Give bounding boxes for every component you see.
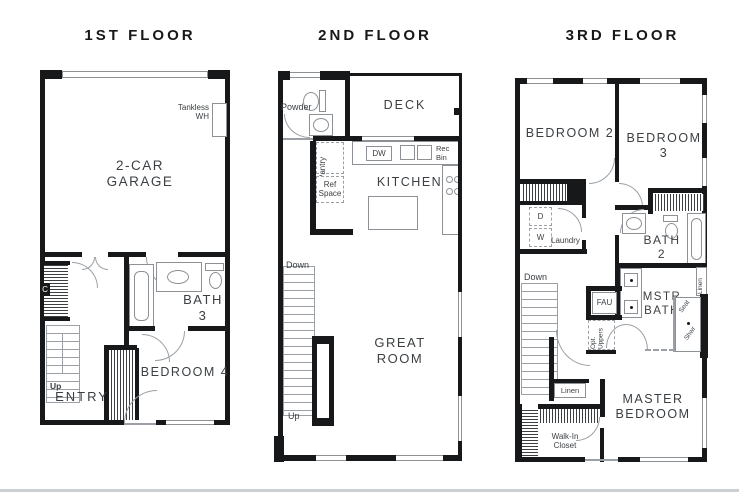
bedroom3-label: BEDROOM 3 <box>620 131 708 161</box>
closet-c-label: C <box>40 283 50 296</box>
wall <box>702 78 707 95</box>
wall <box>454 108 462 115</box>
floor3-title: 3RD FLOOR <box>545 27 700 44</box>
dw-label: DW <box>366 149 392 158</box>
bath2-label: BATH 2 <box>638 233 686 262</box>
wall <box>648 193 653 214</box>
fau-label: FAU <box>592 298 617 307</box>
wall <box>586 350 616 354</box>
window <box>166 420 214 425</box>
stair-well <box>317 344 329 418</box>
wall <box>700 294 708 358</box>
wall <box>188 326 225 331</box>
dryer-label: D <box>529 212 552 221</box>
wall <box>44 317 70 321</box>
wall <box>104 345 109 425</box>
wall <box>346 455 396 461</box>
washer-label: W <box>529 233 552 242</box>
wall <box>350 73 460 76</box>
wall <box>600 428 604 462</box>
wall <box>648 188 707 193</box>
door-threshold <box>585 459 618 461</box>
garage-label: 2-CAR GARAGE <box>70 158 210 190</box>
wall <box>278 71 290 80</box>
toilet-fixture <box>209 272 222 289</box>
powder-label: Powder <box>281 102 312 112</box>
window <box>702 95 707 123</box>
floor2-title: 2ND FLOOR <box>295 27 455 44</box>
toilet-tank <box>663 215 678 222</box>
wall <box>586 286 622 291</box>
floor1-title: 1ST FLOOR <box>55 27 225 44</box>
stairs-arrow <box>62 334 63 374</box>
door-threshold <box>124 423 156 425</box>
wall <box>582 240 586 254</box>
window <box>702 398 707 448</box>
closet-shelving <box>522 409 538 459</box>
bedroom4-label: BEDROOM 4 <box>140 365 230 380</box>
tankless-label: Tankless WH <box>158 103 209 121</box>
window <box>396 455 443 461</box>
linen-lower-label: Linen <box>554 387 586 396</box>
wall <box>688 457 707 462</box>
wall <box>208 70 230 79</box>
toilet-tank <box>205 263 224 271</box>
wall <box>278 455 316 461</box>
window <box>640 457 688 462</box>
master-bedroom-label: MASTER BEDROOM <box>602 392 704 422</box>
kitchen-island <box>368 196 418 230</box>
wall <box>129 326 155 331</box>
door-arc <box>95 257 108 270</box>
sink-fixture <box>626 217 642 230</box>
bathtub-inner <box>134 271 149 321</box>
ref-space-label: Ref Space <box>314 180 346 198</box>
down-label: Down <box>286 260 309 270</box>
sink-fixture <box>167 270 189 284</box>
deck-label: DECK <box>370 98 440 113</box>
wall <box>214 420 230 425</box>
window <box>702 158 707 186</box>
bathtub-inner <box>691 218 702 260</box>
down-label: Down <box>524 272 547 282</box>
wall <box>615 205 652 210</box>
window <box>316 455 346 461</box>
window <box>583 78 607 84</box>
sink-basin <box>417 145 432 160</box>
wall <box>40 70 62 79</box>
closet-shelving <box>523 184 567 201</box>
door-arc <box>556 330 590 366</box>
window <box>458 396 462 441</box>
door-arc <box>626 324 648 350</box>
window <box>527 78 553 84</box>
door-arc <box>558 208 582 232</box>
door-arc <box>72 262 98 288</box>
entry-label: ENTRY <box>42 389 122 405</box>
window <box>290 72 320 78</box>
door-arc <box>589 158 615 184</box>
linen-upper-label: Linen <box>697 269 704 294</box>
window <box>458 292 462 337</box>
wall <box>40 420 124 425</box>
wall <box>178 252 225 257</box>
closet-shelving <box>652 194 704 211</box>
bedroom2-label: BEDROOM 2 <box>520 126 620 141</box>
door-arc <box>284 114 310 138</box>
faucet-dot <box>630 279 633 282</box>
faucet-dot <box>630 306 633 309</box>
door-arc <box>576 417 600 441</box>
toilet-tank <box>319 90 326 112</box>
wall <box>517 249 587 254</box>
wall <box>553 78 583 84</box>
wall <box>615 82 619 182</box>
wall <box>345 73 350 141</box>
sink-basin <box>400 145 415 160</box>
kitchen-label: KITCHEN <box>362 175 457 190</box>
wall <box>702 358 707 398</box>
stairs-floor2 <box>283 266 315 416</box>
door-arc <box>619 183 643 207</box>
tankless-water-heater <box>212 103 227 137</box>
page-divider <box>0 489 739 492</box>
laundry-label: Laundry <box>551 236 580 245</box>
wall <box>607 78 640 84</box>
floorplan-canvas: 1ST FLOOR Tankless WH 2-CAR GARAGE C <box>0 0 739 496</box>
window <box>640 78 680 84</box>
up-label: Up <box>288 411 300 421</box>
opening-dashed <box>645 349 675 351</box>
wall <box>582 204 586 218</box>
drain-dot <box>687 322 690 325</box>
wall <box>515 404 522 462</box>
pantry-label: Pantry <box>318 144 327 180</box>
sink-fixture <box>313 118 329 132</box>
opt-uppers-label: Opt. Uppers <box>590 321 605 349</box>
wall <box>40 252 82 257</box>
door-threshold <box>283 138 313 140</box>
wall <box>443 455 462 461</box>
bath3-label: BATH 3 <box>178 292 228 323</box>
wall <box>517 201 585 205</box>
wall <box>310 229 353 235</box>
garage-door <box>62 71 208 78</box>
wall <box>156 420 166 425</box>
shower-glass <box>673 297 675 352</box>
wall <box>618 457 640 462</box>
wall <box>459 73 462 139</box>
great-room-label: GREAT ROOM <box>355 335 445 366</box>
wall <box>515 457 585 462</box>
